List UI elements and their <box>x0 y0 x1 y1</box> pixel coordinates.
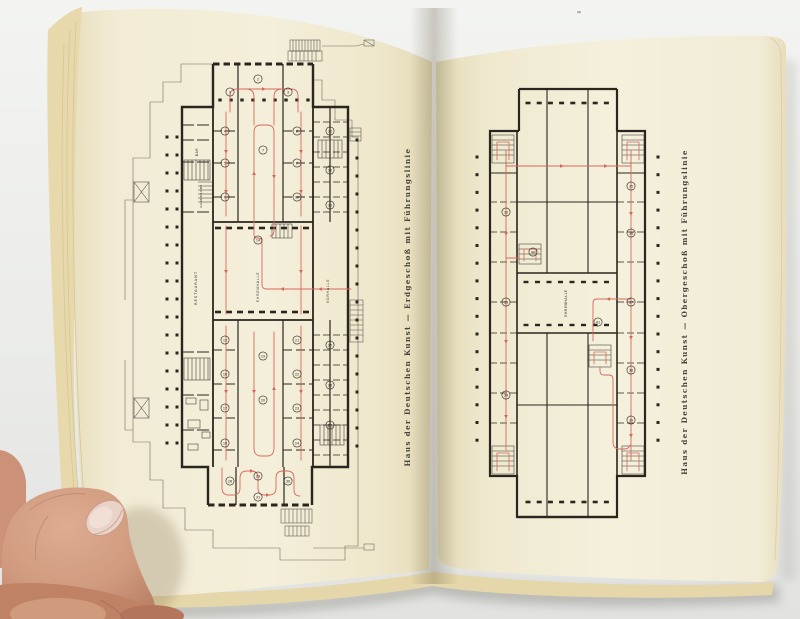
column-dot <box>570 501 575 504</box>
room-number: 20 <box>261 398 265 402</box>
top-hall-columns <box>218 99 309 102</box>
column-dot <box>356 301 359 304</box>
column-dot <box>281 227 287 230</box>
column-dot <box>166 244 169 247</box>
column-dot <box>281 311 287 314</box>
room-number: 25 <box>328 343 332 347</box>
left-page <box>74 9 432 597</box>
column-dot <box>604 501 609 504</box>
room-number: 2 <box>257 77 259 81</box>
column-dot <box>356 175 359 178</box>
column-dot <box>526 102 531 105</box>
column-dot <box>176 442 179 445</box>
room-number: 11 <box>328 129 332 133</box>
column-dot <box>476 333 479 336</box>
column-dot <box>657 173 660 176</box>
column-dot <box>356 193 359 196</box>
column-dot <box>237 311 243 314</box>
column-dot <box>548 102 553 105</box>
column-dot <box>657 209 660 212</box>
column-dot <box>657 226 660 229</box>
room-number: 23 <box>295 406 299 410</box>
room-number: 13 <box>328 203 332 207</box>
column-dot <box>657 315 660 318</box>
column-dot <box>176 208 179 211</box>
column-dot <box>476 156 479 159</box>
left-page-caption: Haus der Deutschen Kunst — Erdgeschoß mi… <box>403 148 412 467</box>
column-dot <box>284 99 287 102</box>
column-dot <box>248 311 254 314</box>
room-number: 19 <box>261 354 265 358</box>
column-dot <box>166 154 169 157</box>
column-dot <box>176 190 179 193</box>
column-dot <box>166 298 169 301</box>
column-dot <box>476 403 479 406</box>
column-dot <box>270 227 276 230</box>
room-number: 28 <box>228 479 232 483</box>
ehrenhalle-columns-south <box>215 311 309 314</box>
column-dot <box>176 136 179 139</box>
column-dot <box>356 355 359 358</box>
column-dot <box>356 229 359 232</box>
column-dot <box>593 501 598 504</box>
column-dot <box>581 324 586 326</box>
column-dot <box>604 324 609 326</box>
restaurant-label: RESTAURANT <box>193 271 198 305</box>
column-dot <box>166 172 169 175</box>
room-number: 39 <box>629 418 633 422</box>
column-dot <box>176 406 179 409</box>
column-dot <box>259 311 265 314</box>
room-number: 33 <box>504 300 508 304</box>
room-number: 15 <box>223 338 227 342</box>
column-dot <box>559 501 564 504</box>
column-dot <box>306 99 309 102</box>
column-dot <box>176 298 179 301</box>
column-dot <box>176 388 179 391</box>
column-dot <box>166 442 169 445</box>
column-dot <box>166 280 169 283</box>
column-dot <box>303 227 309 230</box>
column-dot <box>657 403 660 406</box>
column-dot <box>581 281 586 283</box>
column-dot <box>166 352 169 355</box>
column-dot <box>292 227 298 230</box>
room-number: 40 <box>531 250 535 254</box>
room-number: 1 <box>229 90 231 94</box>
room-number: 6 <box>224 195 226 199</box>
column-dot <box>476 421 479 424</box>
column-dot <box>524 281 529 283</box>
column-dot <box>356 319 359 322</box>
column-dot <box>535 281 540 283</box>
room-number: 22 <box>295 372 299 376</box>
column-dot <box>593 102 598 105</box>
column-dot <box>558 281 563 283</box>
column-dot <box>176 172 179 175</box>
column-dot <box>176 226 179 229</box>
column-dot <box>548 501 553 504</box>
room-number: 14 <box>256 238 260 242</box>
column-dot <box>259 227 265 230</box>
column-dot <box>356 139 359 142</box>
room-number: 30 <box>286 479 290 483</box>
column-dot <box>226 227 232 230</box>
column-dot <box>657 350 660 353</box>
column-dot <box>166 208 169 211</box>
column-dot <box>559 102 564 105</box>
column-dot <box>570 281 575 283</box>
column-dot <box>476 439 479 442</box>
column-dot <box>166 334 169 337</box>
column-dot <box>356 283 359 286</box>
column-dot <box>526 501 531 504</box>
room-number: 3 <box>287 90 289 94</box>
room-number: 26 <box>328 383 332 387</box>
column-dot <box>476 315 479 318</box>
room-number: 18 <box>223 441 227 445</box>
column-dot <box>537 102 542 105</box>
column-dot <box>176 262 179 265</box>
column-dot <box>657 368 660 371</box>
column-dot <box>240 99 243 102</box>
column-dot <box>582 501 587 504</box>
room-number: 10 <box>295 195 299 199</box>
column-dot <box>582 102 587 105</box>
room-number: 5 <box>224 161 226 165</box>
column-dot <box>176 244 179 247</box>
column-dot <box>356 373 359 376</box>
column-dot <box>476 368 479 371</box>
bar-label: BAR <box>195 148 199 157</box>
ehrenhalle-columns-north <box>215 227 309 230</box>
book-photo: 1234567891011121314151617181920212223242… <box>0 0 800 619</box>
column-dot <box>292 311 298 314</box>
room-number: 21 <box>295 338 299 342</box>
column-dot <box>166 388 169 391</box>
column-dot <box>657 333 660 336</box>
column-dot <box>657 279 660 282</box>
column-dot <box>476 191 479 194</box>
column-dot <box>248 227 254 230</box>
column-dot <box>476 262 479 265</box>
column-dot <box>570 102 575 105</box>
column-dot <box>356 157 359 160</box>
column-dot <box>270 311 276 314</box>
column-dot <box>237 227 243 230</box>
column-dot <box>570 324 575 326</box>
column-dot <box>476 279 479 282</box>
column-dot <box>476 386 479 389</box>
photo-speck <box>577 11 581 13</box>
column-dot <box>657 244 660 247</box>
room-number: 27 <box>328 423 332 427</box>
room-number: 17 <box>223 406 227 410</box>
column-dot <box>176 352 179 355</box>
column-dot <box>166 226 169 229</box>
room-number: 24 <box>295 441 299 445</box>
room-number: 36 <box>629 231 633 235</box>
column-dot <box>657 191 660 194</box>
column-dot <box>476 244 479 247</box>
right-page-caption: Haus der Deutschen Kunst — Obergeschoß m… <box>680 149 689 475</box>
column-dot <box>356 211 359 214</box>
room-number: 41 <box>596 320 600 324</box>
vorhalle-label: VORHALLE <box>326 279 330 303</box>
column-dot <box>593 281 598 283</box>
column-dot <box>303 311 309 314</box>
column-dot <box>476 226 479 229</box>
ehrenhalle-label-upper: EHRENHALLE <box>564 289 568 316</box>
column-dot <box>176 316 179 319</box>
room-number: 31 <box>256 495 260 499</box>
column-dot <box>166 424 169 427</box>
column-dot <box>604 102 609 105</box>
column-dot <box>657 421 660 424</box>
ehrenhalle-label: EHRENHALLE <box>256 272 260 302</box>
column-dot <box>215 311 221 314</box>
gutter-shadow <box>410 8 458 584</box>
room-number: 16 <box>223 372 227 376</box>
column-dot <box>657 262 660 265</box>
column-dot <box>166 190 169 193</box>
room-number: 7 <box>262 148 264 152</box>
room-number: 4 <box>224 129 226 133</box>
column-dot <box>215 227 221 230</box>
room-number: 9 <box>296 161 298 165</box>
column-dot <box>657 439 660 442</box>
column-dot <box>176 370 179 373</box>
column-dot <box>537 501 542 504</box>
column-dot <box>476 350 479 353</box>
column-dot <box>176 334 179 337</box>
column-dot <box>547 324 552 326</box>
room-number: 37 <box>629 300 633 304</box>
column-dot <box>604 281 609 283</box>
column-dot <box>657 156 660 159</box>
column-dot <box>356 337 359 340</box>
column-dot <box>166 406 169 409</box>
column-dot <box>166 370 169 373</box>
column-dot <box>218 99 221 102</box>
column-dot <box>547 281 552 283</box>
column-dot <box>356 427 359 430</box>
room-number: 12 <box>328 168 332 172</box>
column-dot <box>226 311 232 314</box>
column-dot <box>176 280 179 283</box>
column-dot <box>356 445 359 448</box>
right-page <box>436 36 787 582</box>
column-dot <box>657 386 660 389</box>
column-dot <box>476 297 479 300</box>
garderobe-label: GARDEROBE <box>199 184 203 208</box>
column-dot <box>524 324 529 326</box>
room-number: 35 <box>629 184 633 188</box>
column-dot <box>476 173 479 176</box>
room-number: 8 <box>296 129 298 133</box>
column-dot <box>166 316 169 319</box>
room-number: 34 <box>504 393 508 397</box>
column-dot <box>166 136 169 139</box>
column-dot <box>356 265 359 268</box>
column-dot <box>558 324 563 326</box>
column-dot <box>476 209 479 212</box>
column-dot <box>356 247 359 250</box>
column-dot <box>176 154 179 157</box>
column-dot <box>176 424 179 427</box>
column-dot <box>657 297 660 300</box>
column-dot <box>356 409 359 412</box>
column-dot <box>535 324 540 326</box>
column-dot <box>262 99 265 102</box>
room-number: 32 <box>504 210 508 214</box>
column-dot <box>356 391 359 394</box>
room-number: 29 <box>256 474 260 478</box>
room-number: 38 <box>629 368 633 372</box>
column-dot <box>166 262 169 265</box>
